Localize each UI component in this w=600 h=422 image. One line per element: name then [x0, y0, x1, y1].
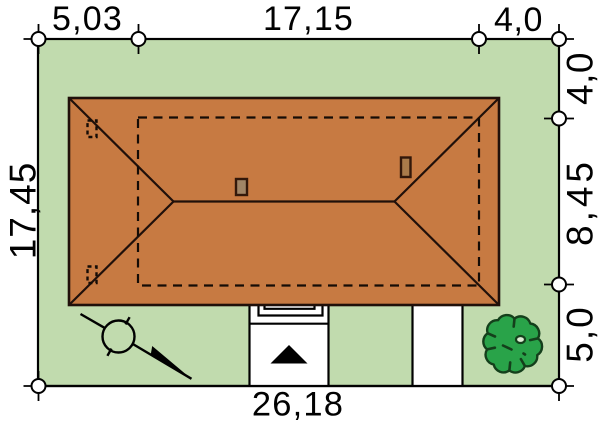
svg-text:5,0: 5,0 — [560, 305, 600, 362]
svg-text:4,0: 4,0 — [560, 52, 600, 105]
svg-text:5,03: 5,03 — [52, 0, 123, 38]
svg-text:26,18: 26,18 — [252, 386, 344, 422]
svg-text:8,45: 8,45 — [560, 158, 600, 246]
svg-text:17,45: 17,45 — [3, 162, 44, 260]
svg-text:4,0: 4,0 — [494, 1, 543, 39]
svg-text:17,15: 17,15 — [263, 0, 354, 38]
